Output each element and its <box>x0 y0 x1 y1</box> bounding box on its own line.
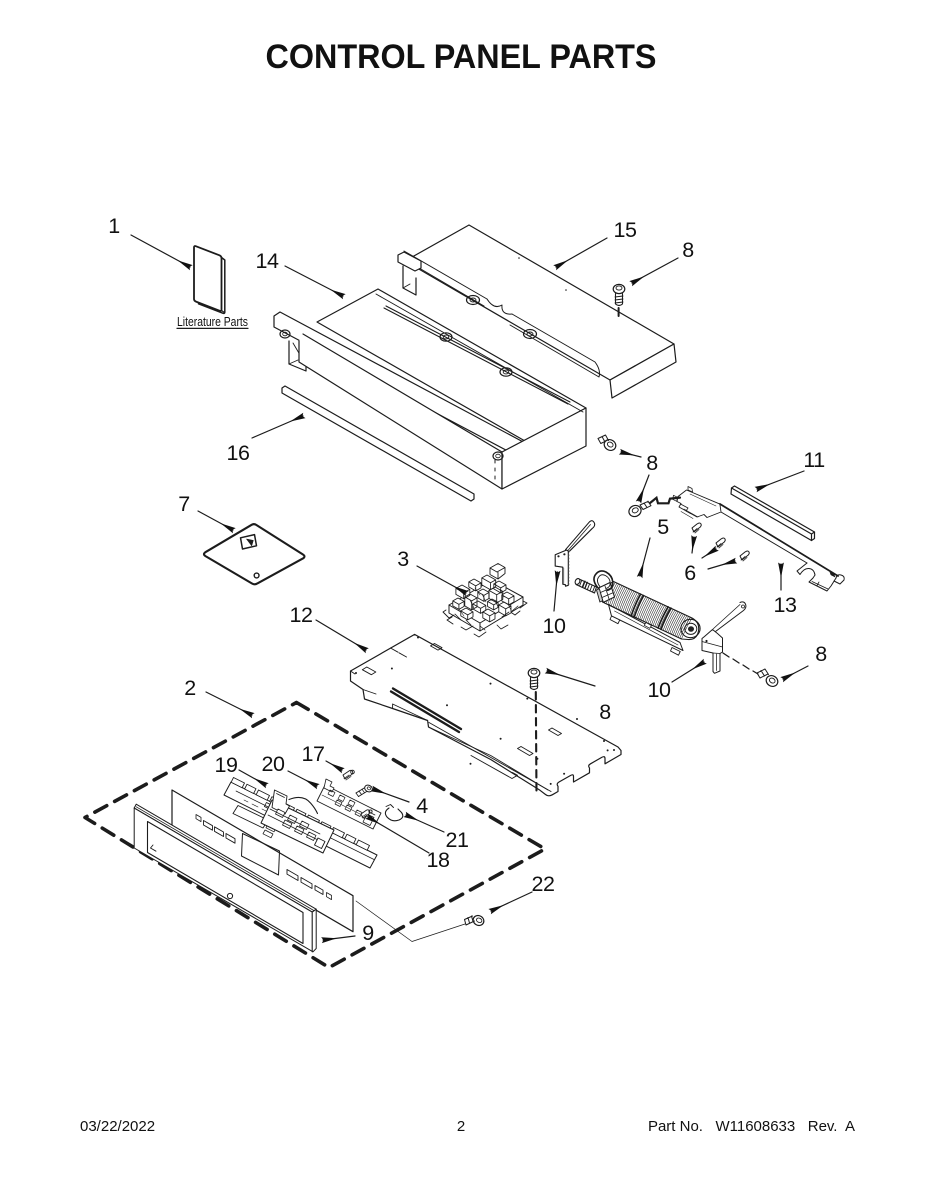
svg-text:Part No. W11608633 Rev. A: Part No. W11608633 Rev. A <box>648 1118 855 1135</box>
svg-text:12: 12 <box>290 603 313 627</box>
svg-text:8: 8 <box>815 642 827 666</box>
svg-text:2: 2 <box>184 676 195 700</box>
svg-text:8: 8 <box>599 700 611 724</box>
svg-text:22: 22 <box>532 872 555 896</box>
svg-text:16: 16 <box>227 441 250 465</box>
svg-text:20: 20 <box>262 752 285 776</box>
svg-text:7: 7 <box>178 492 189 516</box>
svg-text:5: 5 <box>657 515 669 539</box>
svg-text:13: 13 <box>774 593 797 617</box>
svg-text:11: 11 <box>803 448 824 472</box>
svg-text:9: 9 <box>362 921 373 945</box>
svg-text:6: 6 <box>684 561 696 585</box>
svg-text:18: 18 <box>427 848 450 872</box>
svg-text:8: 8 <box>646 451 658 475</box>
svg-text:15: 15 <box>614 218 637 242</box>
svg-text:10: 10 <box>543 614 566 638</box>
svg-text:14: 14 <box>256 249 279 273</box>
svg-text:CONTROL PANEL PARTS: CONTROL PANEL PARTS <box>266 38 657 76</box>
svg-text:17: 17 <box>302 742 325 766</box>
svg-text:19: 19 <box>215 753 238 777</box>
svg-text:4: 4 <box>416 794 428 818</box>
svg-text:3: 3 <box>397 547 409 571</box>
svg-text:8: 8 <box>682 238 694 262</box>
svg-text:10: 10 <box>648 678 671 702</box>
svg-text:03/22/2022: 03/22/2022 <box>80 1118 155 1135</box>
svg-text:2: 2 <box>457 1118 465 1135</box>
svg-text:Literature Parts: Literature Parts <box>177 314 248 329</box>
svg-text:1: 1 <box>108 214 119 238</box>
